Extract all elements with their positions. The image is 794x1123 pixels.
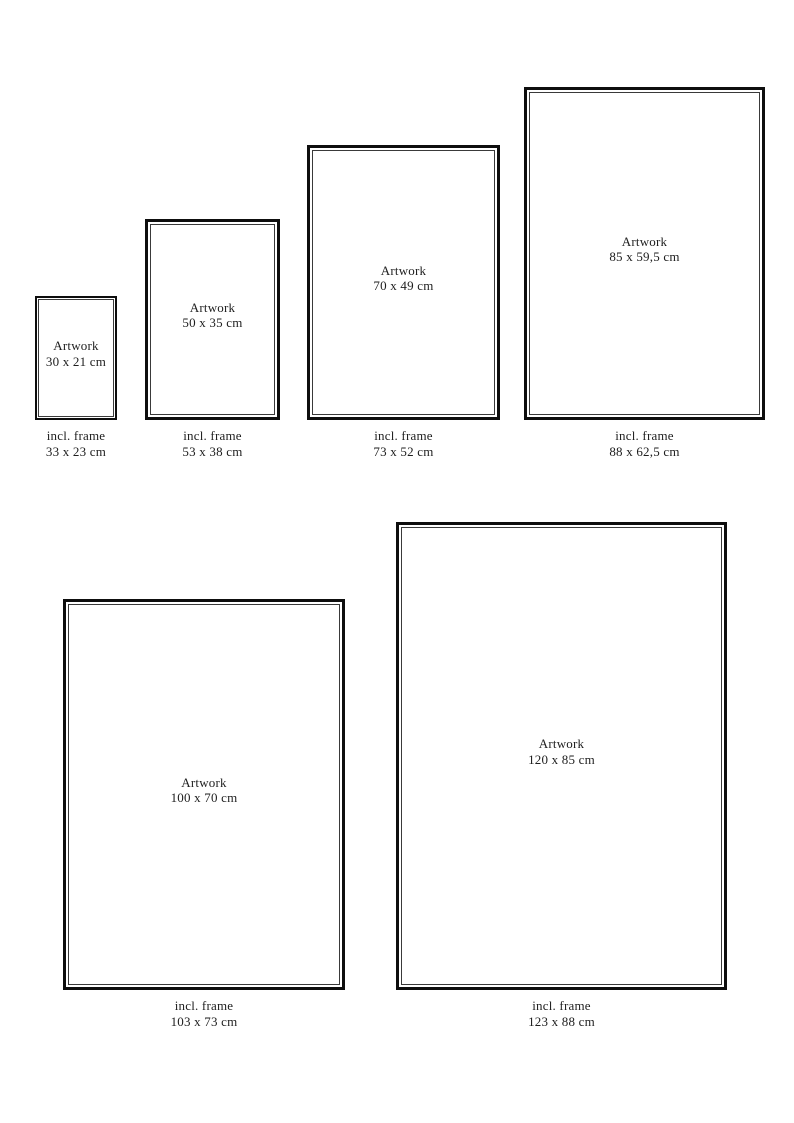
- artwork-title: Artwork: [373, 263, 433, 279]
- artwork-title: Artwork: [528, 736, 595, 752]
- artwork-size: 120 x 85 cm: [528, 752, 595, 768]
- incl-frame-size: 123 x 88 cm: [366, 1014, 757, 1030]
- frame-caption: incl. frame 88 x 62,5 cm: [494, 428, 794, 459]
- artwork-frame: Artwork 85 x 59,5 cm: [524, 87, 765, 420]
- artwork-mat: Artwork 120 x 85 cm: [401, 527, 722, 985]
- artwork-title: Artwork: [182, 300, 242, 316]
- artwork-mat: Artwork 70 x 49 cm: [312, 150, 495, 415]
- artwork-label: Artwork 50 x 35 cm: [182, 300, 242, 340]
- artwork-frame: Artwork 70 x 49 cm: [307, 145, 500, 420]
- artwork-label: Artwork 30 x 21 cm: [46, 338, 106, 378]
- incl-frame-label: incl. frame: [277, 428, 530, 444]
- artwork-frame: Artwork 120 x 85 cm: [396, 522, 727, 990]
- artwork-label: Artwork 70 x 49 cm: [373, 263, 433, 303]
- incl-frame-label: incl. frame: [494, 428, 794, 444]
- artwork-label: Artwork 100 x 70 cm: [171, 775, 238, 815]
- size-guide-canvas: Artwork 30 x 21 cm incl. frame 33 x 23 c…: [0, 0, 794, 1123]
- artwork-label: Artwork 85 x 59,5 cm: [609, 234, 679, 274]
- artwork-size: 30 x 21 cm: [46, 354, 106, 370]
- artwork-mat: Artwork 100 x 70 cm: [68, 604, 340, 985]
- artwork-frame: Artwork 100 x 70 cm: [63, 599, 345, 990]
- artwork-size: 85 x 59,5 cm: [609, 249, 679, 265]
- artwork-size: 100 x 70 cm: [171, 790, 238, 806]
- incl-frame-size: 73 x 52 cm: [277, 444, 530, 460]
- artwork-title: Artwork: [171, 775, 238, 791]
- artwork-title: Artwork: [46, 338, 106, 354]
- artwork-label: Artwork 120 x 85 cm: [528, 736, 595, 776]
- artwork-frame: Artwork 30 x 21 cm: [35, 296, 117, 420]
- artwork-size: 70 x 49 cm: [373, 278, 433, 294]
- frame-caption: incl. frame 73 x 52 cm: [277, 428, 530, 459]
- artwork-mat: Artwork 30 x 21 cm: [38, 299, 114, 417]
- incl-frame-size: 88 x 62,5 cm: [494, 444, 794, 460]
- artwork-frame: Artwork 50 x 35 cm: [145, 219, 280, 420]
- artwork-mat: Artwork 50 x 35 cm: [150, 224, 275, 415]
- artwork-title: Artwork: [609, 234, 679, 250]
- incl-frame-size: 103 x 73 cm: [33, 1014, 375, 1030]
- incl-frame-label: incl. frame: [366, 998, 757, 1014]
- incl-frame-label: incl. frame: [33, 998, 375, 1014]
- frame-caption: incl. frame 103 x 73 cm: [33, 998, 375, 1029]
- artwork-mat: Artwork 85 x 59,5 cm: [529, 92, 760, 415]
- frame-caption: incl. frame 123 x 88 cm: [366, 998, 757, 1029]
- artwork-size: 50 x 35 cm: [182, 315, 242, 331]
